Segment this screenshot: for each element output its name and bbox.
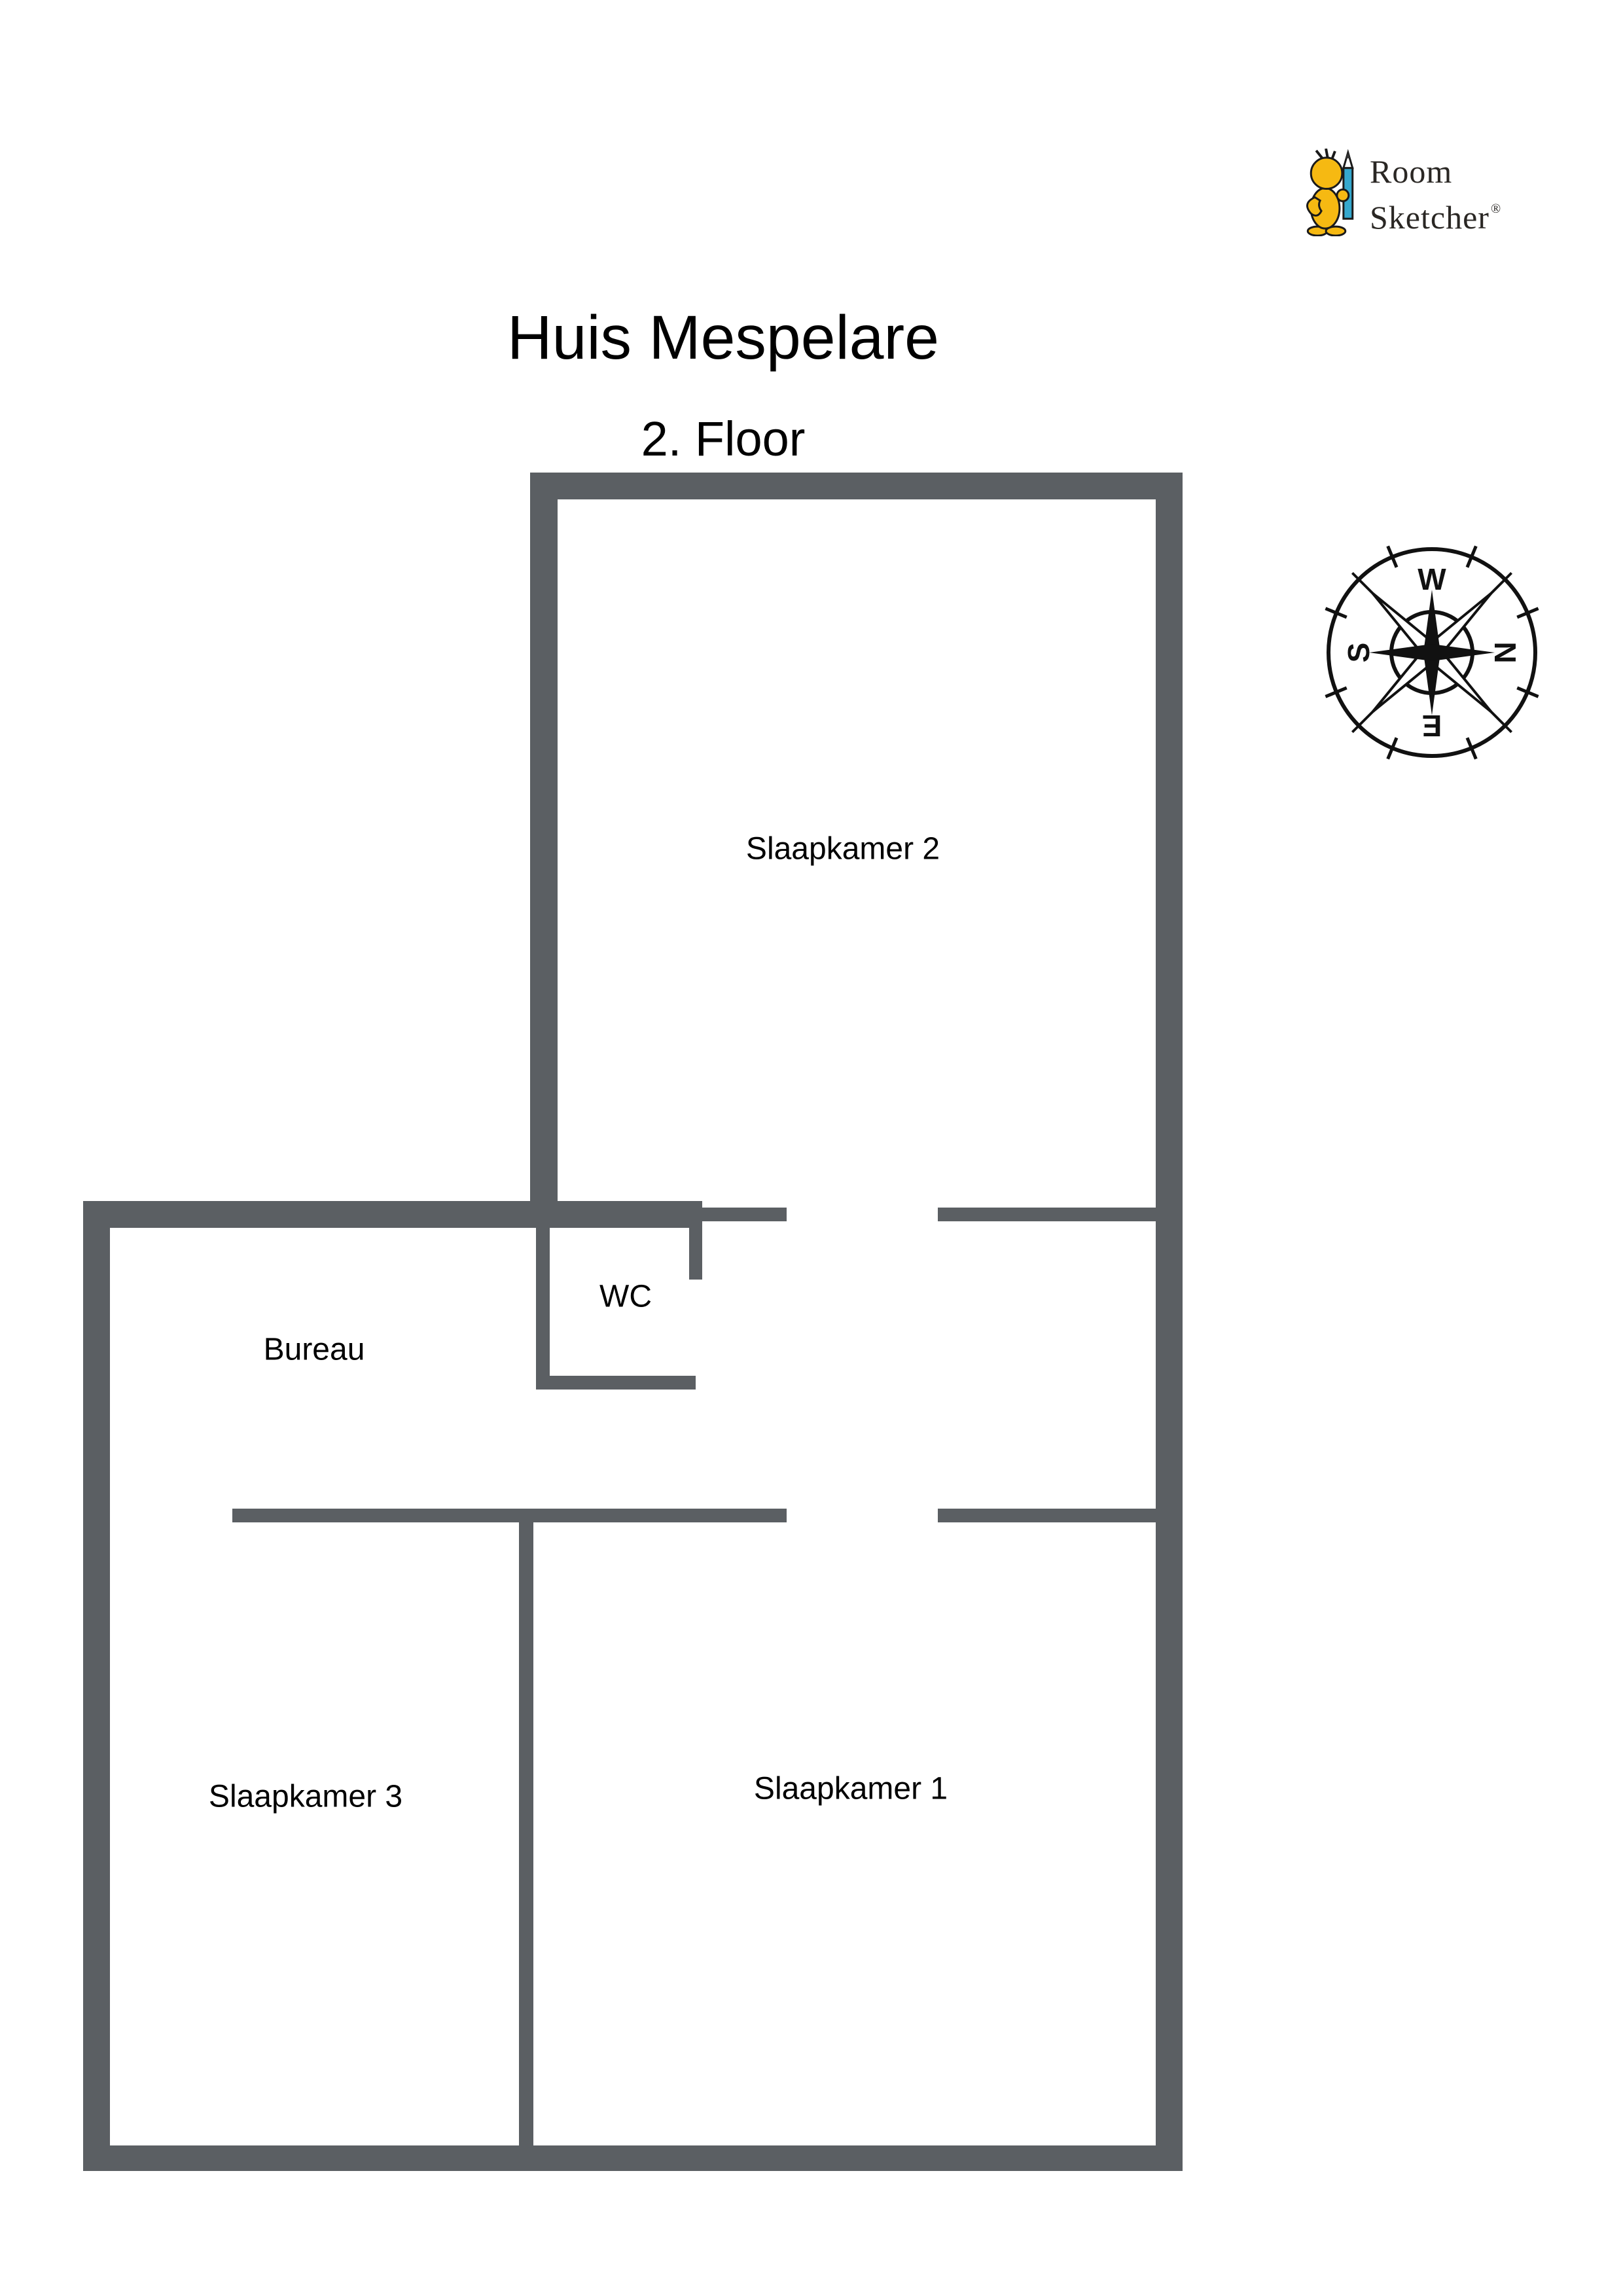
- wall-segment-7: [938, 1208, 1156, 1221]
- wall-segment-0: [530, 473, 1183, 499]
- floorplan-drawing: Slaapkamer 2WCBureauSlaapkamer 3Slaapkam…: [0, 0, 1623, 2296]
- wall-segment-4: [83, 1201, 110, 2171]
- wall-segment-5: [83, 2145, 1183, 2171]
- wall-segment-6: [702, 1208, 787, 1221]
- wall-segment-10: [689, 1228, 702, 1280]
- wall-segment-11: [232, 1509, 787, 1522]
- wall-segment-1: [530, 473, 558, 1228]
- room-label-wc: WC: [599, 1279, 652, 1315]
- room-label-slaapkamer-1: Slaapkamer 1: [754, 1771, 948, 1807]
- wall-segment-9: [536, 1376, 696, 1390]
- floorplan-page: Room Sketcher® Huis Mespelare 2. Floor: [0, 0, 1623, 2296]
- room-label-slaapkamer-2: Slaapkamer 2: [746, 831, 940, 867]
- wall-segment-2: [1156, 473, 1183, 2171]
- room-label-slaapkamer-3: Slaapkamer 3: [209, 1779, 402, 1815]
- room-label-bureau: Bureau: [264, 1332, 365, 1368]
- wall-segment-12: [938, 1509, 1156, 1522]
- wall-segment-13: [519, 1522, 533, 2145]
- wall-segment-8: [536, 1228, 550, 1390]
- wall-segment-3: [83, 1201, 702, 1228]
